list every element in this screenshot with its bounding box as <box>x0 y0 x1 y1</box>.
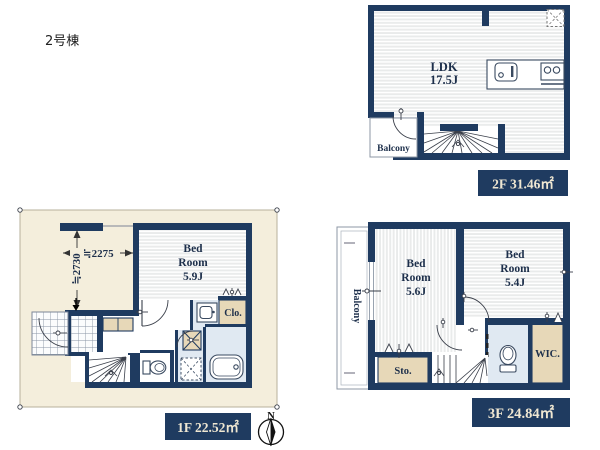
entrance-hall <box>71 316 97 352</box>
wic-label: WIC. <box>535 349 560 360</box>
bedroom2-label-2: Room <box>500 263 530 275</box>
ldk-size-label: 17.5J <box>430 73 458 87</box>
vanity-icon <box>197 303 217 322</box>
area-badge-3f: 3F 24.84㎡ <box>472 398 570 427</box>
entrance-porch <box>32 312 68 355</box>
stairs-1f <box>89 355 130 382</box>
dimension-height-text: ≒2730 <box>71 253 83 285</box>
area-badge-1f-text: 1F 22.52㎡ <box>177 419 239 435</box>
stairs-2f <box>424 124 498 153</box>
dimension-width-text: ≒2275 <box>82 248 114 260</box>
floorplan-sheet: 2号棟 <box>0 0 600 450</box>
washing-machine-pan-icon <box>181 358 201 380</box>
area-badge-2f: 2F 31.46㎡ <box>478 170 568 196</box>
compass-icon: N <box>259 411 284 446</box>
kitchen-counter <box>487 60 564 89</box>
floor-plan-3f: Balcony <box>330 218 580 436</box>
toilet-icon <box>143 361 166 374</box>
balcony-3f: Balcony <box>337 227 371 389</box>
bedroom1-size: 5.6J <box>406 286 426 298</box>
bedroom2-label-1: Bed <box>505 249 525 261</box>
area-badge-1f: 1F 22.52㎡ <box>165 413 251 440</box>
shoe-cabinet <box>103 318 133 331</box>
balcony-3f-label: Balcony <box>351 289 362 323</box>
stairs-3f <box>432 355 488 383</box>
kitchen-sink-icon <box>495 63 517 81</box>
balcony-2f: Balcony <box>370 118 417 157</box>
bedroom1-label-1: Bed <box>406 258 426 270</box>
area-badge-2f-text: 2F 31.46㎡ <box>492 176 554 192</box>
bedroom-1f-label-1: Bed <box>183 243 203 255</box>
toilet-1f <box>143 361 166 374</box>
boundary-wall-bar <box>60 223 103 231</box>
building-number-label: 2号棟 <box>45 30 79 49</box>
bedroom-1f-label-2: Room <box>178 257 208 269</box>
closet-1f-label: Clo. <box>224 308 242 319</box>
ldk-label: LDK <box>430 60 457 74</box>
skylight-icon <box>547 10 564 27</box>
area-badge-3f-text: 3F 24.84㎡ <box>488 404 555 422</box>
floor-plan-1f: ≒2275 ≒2730 Bed Room 5.9J Clo. <box>15 200 300 450</box>
bedroom2-size: 5.4J <box>505 277 525 289</box>
balcony-2f-label: Balcony <box>377 144 410 154</box>
bedroom-1f-size: 5.9J <box>183 271 203 283</box>
storage-label: Sto. <box>394 366 412 377</box>
floor-plan-2f: LDK 17.5J Balcony 2F 31.46㎡ <box>360 0 600 205</box>
bathtub-icon <box>210 355 243 379</box>
bedroom1-label-2: Room <box>401 272 431 284</box>
